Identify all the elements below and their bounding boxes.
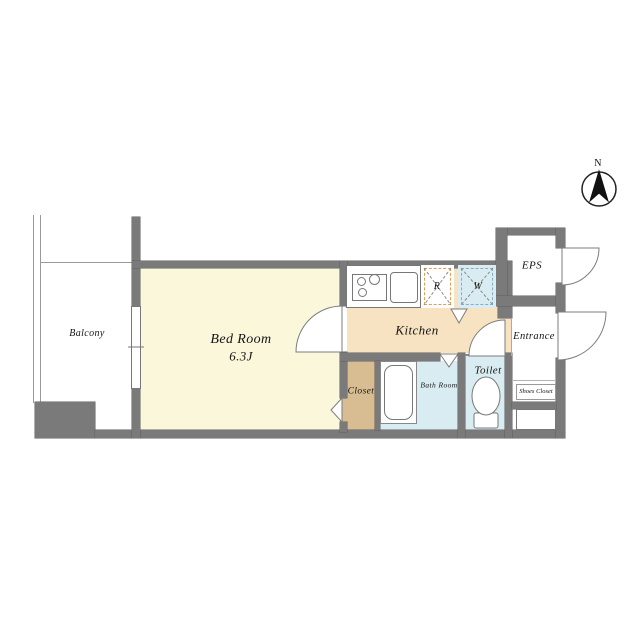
eps-label: EPS bbox=[522, 261, 542, 272]
bathroom-label: Bath Room bbox=[420, 381, 457, 389]
closet-label: Closet bbox=[348, 387, 375, 397]
bedroom-size-label: 6.3J bbox=[229, 350, 253, 363]
bedroom-door bbox=[296, 306, 342, 352]
compass-north-label: N bbox=[594, 159, 602, 169]
closet-door-mark bbox=[331, 398, 342, 422]
entrance-door bbox=[558, 312, 606, 360]
toilet-icon bbox=[472, 377, 500, 428]
shoes-closet-label: Shoes Closet bbox=[519, 389, 552, 396]
balcony-label: Balcony bbox=[69, 329, 105, 339]
washer-label: W bbox=[474, 282, 483, 292]
toilet-label: Toilet bbox=[474, 366, 501, 377]
plan-overlay bbox=[0, 0, 640, 640]
washer-space-door-mark bbox=[451, 309, 467, 323]
entrance-label: Entrance bbox=[513, 332, 555, 343]
bathroom-door-mark bbox=[440, 354, 458, 367]
north-compass-icon bbox=[582, 171, 616, 206]
eps-door bbox=[562, 248, 599, 285]
bedroom-label: Bed Room bbox=[210, 333, 271, 347]
floor-plan: Balcony Bed Room 6.3J Kitchen Closet Bat… bbox=[0, 0, 640, 640]
toilet-door bbox=[469, 320, 505, 356]
kitchen-label: Kitchen bbox=[395, 324, 438, 337]
refrigerator-label: R bbox=[434, 282, 441, 292]
